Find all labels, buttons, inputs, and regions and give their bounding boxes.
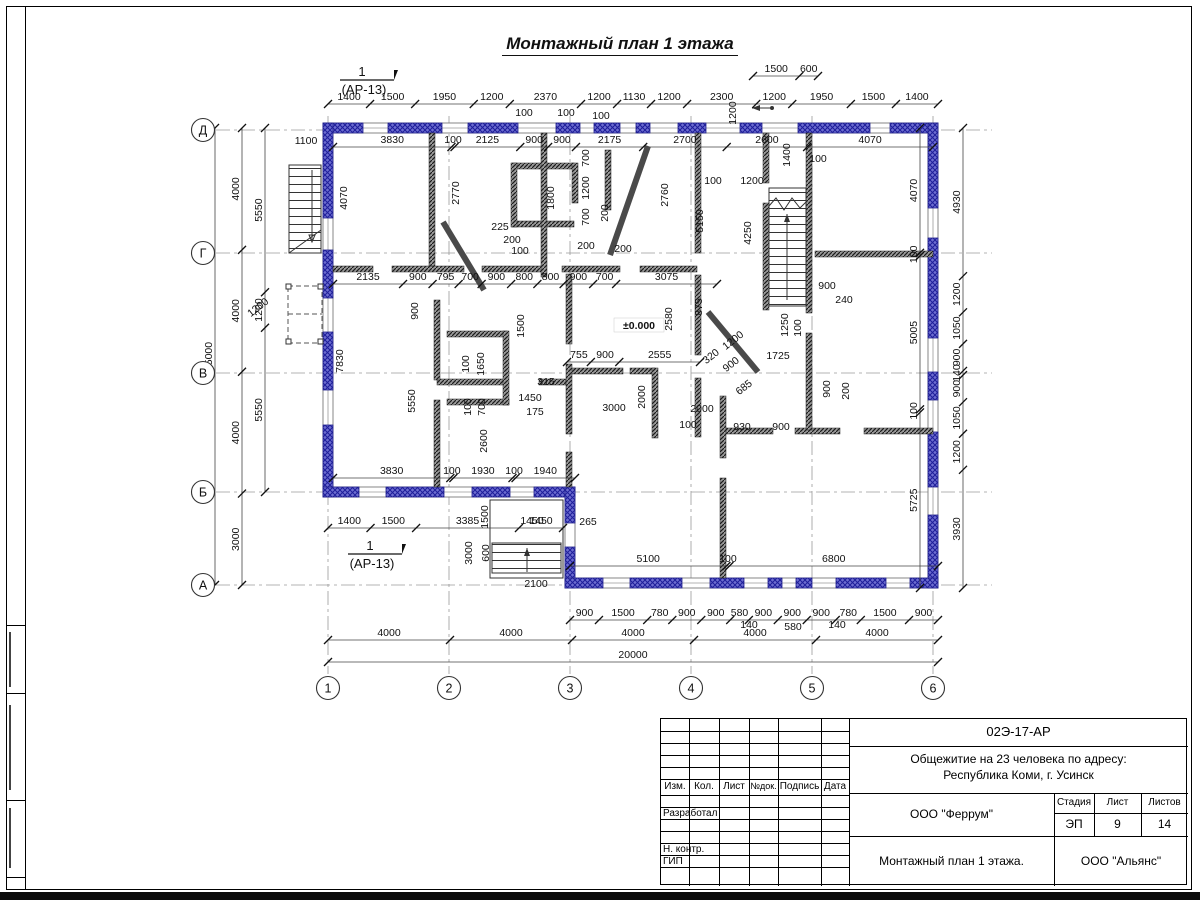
dim-label: 3075 bbox=[655, 271, 679, 283]
dim-chain-top-main: 1400150019501200237012001130120023001200… bbox=[324, 91, 942, 108]
dim-label: 200 bbox=[599, 204, 611, 222]
dim-label: 1650 bbox=[475, 352, 487, 376]
axis-label-col: 3 bbox=[567, 682, 574, 696]
dim-label: 580 bbox=[731, 607, 749, 619]
level-mark-value: ±0.000 bbox=[623, 320, 655, 332]
dim-label: 100 bbox=[505, 465, 523, 477]
interior-walls bbox=[333, 133, 933, 578]
dim-label: 4000 bbox=[230, 421, 242, 445]
dim-label: 800 bbox=[542, 271, 560, 283]
dim-label: 140 bbox=[951, 364, 963, 382]
axis-label-col: 6 bbox=[930, 682, 937, 696]
dim-label: 100 bbox=[679, 419, 697, 431]
sheet-value: 9 bbox=[1094, 813, 1141, 836]
dim-label: 5550 bbox=[253, 198, 265, 222]
section-mark-number: 1 bbox=[358, 64, 365, 79]
dim-label: 2700 bbox=[673, 134, 697, 146]
dim-label: 5100 bbox=[637, 553, 661, 565]
dim-label: 1200 bbox=[587, 91, 611, 103]
exterior-stair bbox=[289, 165, 321, 253]
project-name-line2: Республика Коми, г. Усинск bbox=[849, 765, 1188, 785]
dim-label: 3385 bbox=[456, 515, 480, 527]
dim-label: 1950 bbox=[810, 91, 834, 103]
drawing-sheet: Монтажный план 1 этажа bbox=[0, 0, 1200, 900]
dim-chain-left-total: 15000 bbox=[203, 124, 219, 589]
dim-label: 1500 bbox=[873, 607, 897, 619]
dim-label: 4070 bbox=[858, 134, 882, 146]
dim-label: 5550 bbox=[406, 389, 418, 413]
dim-label: 1250 bbox=[779, 313, 791, 337]
section-mark-ref: (АР-13) bbox=[342, 82, 387, 97]
stamp-col-data: Дата bbox=[821, 779, 849, 795]
dim-label: 1200 bbox=[951, 440, 963, 464]
dim-label: 5005 bbox=[908, 321, 920, 345]
dim-label: 1725 bbox=[766, 350, 790, 362]
dim-label: 1200 bbox=[951, 282, 963, 306]
stamp-col-kol: Кол. bbox=[689, 779, 719, 795]
axis-label-col: 2 bbox=[446, 682, 453, 696]
dim-label: 2555 bbox=[648, 349, 672, 361]
dim-label: 1500 bbox=[862, 91, 886, 103]
dim-label: 4070 bbox=[908, 179, 920, 203]
sheet-title: Монтажный план 1 этажа. bbox=[849, 836, 1054, 886]
dim-chain-top-inner: 383010021259009002175270026004070 bbox=[329, 134, 937, 151]
canopy-dashed bbox=[286, 284, 323, 344]
dim-label: 100 bbox=[557, 107, 575, 119]
dim-chain-mid-inner: 21359007957009008008009007003075 bbox=[329, 271, 721, 288]
dim-chain-low-inner: 383010019301001940 bbox=[329, 465, 579, 482]
dim-label: 100 bbox=[704, 175, 722, 187]
dim-label: 100 bbox=[444, 134, 462, 146]
dim-label: 1200 bbox=[480, 91, 504, 103]
main-stair bbox=[769, 188, 806, 306]
dim-label: 100 bbox=[515, 107, 533, 119]
dim-label: 2580 bbox=[663, 307, 675, 331]
dim-label: 900 bbox=[951, 348, 963, 366]
stamp-col-list: Лист bbox=[719, 779, 749, 795]
dim-label: 100 bbox=[462, 398, 474, 416]
dim-label: 320 bbox=[701, 346, 722, 366]
dim-label: 875 bbox=[693, 298, 705, 316]
section-mark-ref: (АР-13) bbox=[350, 556, 395, 571]
dim-label: 3830 bbox=[381, 134, 405, 146]
dim-label: 1500 bbox=[611, 607, 635, 619]
axis-label-row: А bbox=[199, 579, 208, 593]
dim-chain-bottom-axes: 40004000400040004000 bbox=[324, 627, 942, 644]
dim-label: 240 bbox=[835, 294, 853, 306]
dim-label: 900 bbox=[812, 607, 830, 619]
dim-label: 1130 bbox=[623, 91, 646, 103]
dim-label: 900 bbox=[915, 607, 933, 619]
dim-chain-v-row: 7559002555 bbox=[563, 349, 704, 366]
dim-label: 5150 bbox=[694, 209, 706, 233]
dim-label: 2760 bbox=[659, 183, 671, 207]
axis-label-col: 5 bbox=[809, 682, 816, 696]
dim-label: 700 bbox=[476, 398, 488, 416]
dim-label: 2175 bbox=[598, 134, 622, 146]
entry-arrow-icon bbox=[752, 105, 774, 111]
dim-label: 900 bbox=[525, 134, 543, 146]
dim-label: 1450 bbox=[518, 392, 542, 404]
dim-label: 900 bbox=[951, 380, 963, 398]
dim-label: 900 bbox=[784, 607, 802, 619]
dim-label: 3000 bbox=[463, 541, 475, 565]
dim-label: 700 bbox=[461, 271, 479, 283]
dim-label: 4930 bbox=[951, 190, 963, 214]
dim-label: 2125 bbox=[476, 134, 500, 146]
dim-label: 795 bbox=[437, 271, 455, 283]
axis-label-row: Д bbox=[199, 124, 208, 138]
section-mark-bottom: 1 (АР-13) bbox=[348, 538, 406, 571]
dim-label: 600 bbox=[480, 544, 492, 562]
dim-label: 900 bbox=[707, 607, 725, 619]
dim-label: 900 bbox=[678, 607, 696, 619]
dim-label: 1400 bbox=[781, 143, 793, 167]
axis-label-col: 4 bbox=[688, 682, 695, 696]
stamp-row-gip: ГИП bbox=[663, 856, 683, 867]
dim-label: 225 bbox=[491, 221, 509, 233]
dim-label: 900 bbox=[409, 302, 421, 320]
axis-label-col: 1 bbox=[325, 682, 332, 696]
dim-label: 900 bbox=[821, 380, 833, 398]
dim-label: 4250 bbox=[742, 221, 754, 245]
dim-chain-left-axes: 4000400040003000 bbox=[230, 124, 246, 589]
dim-label: 3830 bbox=[380, 465, 404, 477]
dim-label: 1200 bbox=[740, 175, 764, 187]
dim-label: 900 bbox=[409, 271, 427, 283]
dim-chain-bottom-total: 20000 bbox=[324, 649, 942, 666]
stamp-row-developer: Разработал bbox=[663, 808, 717, 819]
dim-label: 100 bbox=[908, 245, 920, 263]
sheets-value: 14 bbox=[1141, 813, 1188, 836]
dim-label: 1050 bbox=[951, 316, 963, 340]
dim-label: 2370 bbox=[534, 91, 558, 103]
dim-label: 100 bbox=[443, 465, 461, 477]
stage-label: Стадия bbox=[1054, 793, 1094, 813]
dim-label: 4000 bbox=[377, 627, 401, 639]
dim-label: 2300 bbox=[710, 91, 734, 103]
dim-label: 265 bbox=[579, 516, 597, 528]
dim-label: 900 bbox=[570, 271, 588, 283]
dim-label: 3000 bbox=[230, 527, 242, 551]
stamp-col-podpis: Подпись bbox=[778, 779, 821, 795]
dim-label: 1500 bbox=[382, 515, 406, 527]
dim-label: 1940 bbox=[534, 465, 558, 477]
dim-label: 4070 bbox=[338, 186, 350, 210]
dim-label: 1400 bbox=[338, 515, 362, 527]
dim-label: 200 bbox=[614, 243, 632, 255]
dim-label: 100 bbox=[908, 402, 920, 420]
dim-label: 1500 bbox=[765, 63, 789, 75]
dim-label: 100 bbox=[809, 153, 827, 165]
section-mark-number: 1 bbox=[366, 538, 373, 553]
sheet-label: Лист bbox=[1094, 793, 1141, 813]
dim-chain-top-upper: 1500600 bbox=[749, 63, 822, 80]
dim-label: 4000 bbox=[230, 299, 242, 323]
dim-label: 4000 bbox=[230, 177, 242, 201]
dim-label: 5550 bbox=[253, 398, 265, 422]
dim-label: 6800 bbox=[822, 553, 846, 565]
dim-label: 4000 bbox=[621, 627, 645, 639]
dim-label: 900 bbox=[488, 271, 506, 283]
dim-label: 900 bbox=[553, 134, 571, 146]
dim-label: 100 bbox=[511, 245, 529, 257]
dim-label: 2600 bbox=[755, 134, 779, 146]
dim-label: 685 bbox=[734, 377, 755, 397]
dim-label: 700 bbox=[596, 271, 614, 283]
sheets-label: Листов bbox=[1141, 793, 1188, 813]
dim-chain-low-inner2: 51001006800 bbox=[566, 553, 942, 570]
dim-label: 200 bbox=[577, 240, 595, 252]
dim-chain-right-outer: 493012001050900140900105012003930 bbox=[951, 124, 967, 592]
dim-label: 600 bbox=[800, 63, 818, 75]
dim-label: 1200 bbox=[763, 91, 787, 103]
dim-label: 700 bbox=[580, 149, 592, 167]
dim-label: 1950 bbox=[433, 91, 457, 103]
dim-label: 900 bbox=[576, 607, 594, 619]
dim-label: 2135 bbox=[356, 271, 380, 283]
dim-label: 2000 bbox=[690, 403, 714, 415]
dim-label: 140 bbox=[740, 619, 758, 631]
dim-label: 140 bbox=[828, 619, 846, 631]
axis-label-row: Б bbox=[199, 486, 207, 500]
stamp-col-doc: №док. bbox=[749, 779, 778, 795]
axis-label-row: Г bbox=[200, 247, 207, 261]
dim-label: 100 bbox=[592, 110, 610, 122]
dim-label: 1930 bbox=[471, 465, 495, 477]
dim-label: 20000 bbox=[618, 649, 647, 661]
dim-label: 2000 bbox=[636, 385, 648, 409]
dim-label: 900 bbox=[596, 349, 614, 361]
dim-label: 900 bbox=[755, 607, 773, 619]
entrance-porch-steps bbox=[490, 500, 563, 578]
stamp-col-izm: Изм. bbox=[661, 779, 689, 795]
dim-label: 780 bbox=[839, 607, 857, 619]
dim-label: 100 bbox=[460, 355, 472, 373]
dim-label: 3000 bbox=[602, 402, 626, 414]
dim-label: 1800 bbox=[545, 186, 557, 210]
dim-label: 580 bbox=[784, 621, 802, 633]
stage-value: ЭП bbox=[1054, 813, 1094, 836]
stamp-row-ncontrol: Н. контр. bbox=[663, 844, 704, 855]
dim-label: 315 bbox=[537, 376, 555, 388]
dim-label: 930 bbox=[733, 421, 751, 433]
dim-label: 1200 bbox=[727, 101, 739, 125]
dim-label: 2770 bbox=[450, 181, 462, 205]
dim-label: 1200 bbox=[580, 176, 592, 200]
dim-label: 900 bbox=[772, 421, 790, 433]
dim-label: 1500 bbox=[479, 505, 491, 529]
dim-label: 200 bbox=[840, 382, 852, 400]
dim-label: 800 bbox=[515, 271, 533, 283]
dim-label: 700 bbox=[580, 208, 592, 226]
dim-label: 900 bbox=[721, 354, 742, 374]
dim-label: 5725 bbox=[908, 488, 920, 512]
dim-chain-right-inner: 407010050051005725 bbox=[908, 124, 924, 592]
dim-label: 1100 bbox=[295, 135, 318, 147]
dim-label: 100 bbox=[719, 553, 737, 565]
dim-label: 1500 bbox=[515, 314, 527, 338]
dim-label: 2100 bbox=[524, 578, 548, 590]
doc-number: 02Э-17-АР bbox=[849, 719, 1188, 746]
dim-label: 1200 bbox=[657, 91, 681, 103]
org2-name: ООО "Альянс" bbox=[1054, 836, 1188, 886]
dim-label: 900 bbox=[818, 280, 836, 292]
dim-label: 1400 bbox=[905, 91, 929, 103]
dim-label: 3930 bbox=[951, 517, 963, 541]
dim-label: 7830 bbox=[334, 349, 346, 373]
org-name: ООО "Феррум" bbox=[849, 793, 1054, 836]
dim-label: 780 bbox=[651, 607, 669, 619]
dim-label: 4000 bbox=[499, 627, 523, 639]
dim-label: 755 bbox=[570, 349, 588, 361]
dim-label: 2600 bbox=[478, 429, 490, 453]
dim-label: 4000 bbox=[865, 627, 889, 639]
dim-label: 175 bbox=[526, 406, 544, 418]
dim-label: 1450 bbox=[520, 515, 544, 527]
level-mark: ±0.000 bbox=[614, 318, 664, 332]
axis-label-row: В bbox=[199, 367, 207, 381]
dim-label: 1050 bbox=[951, 406, 963, 430]
title-block: Изм. Кол. Лист №док. Подпись Дата Разраб… bbox=[660, 718, 1187, 885]
dim-label: 100 bbox=[792, 319, 804, 337]
